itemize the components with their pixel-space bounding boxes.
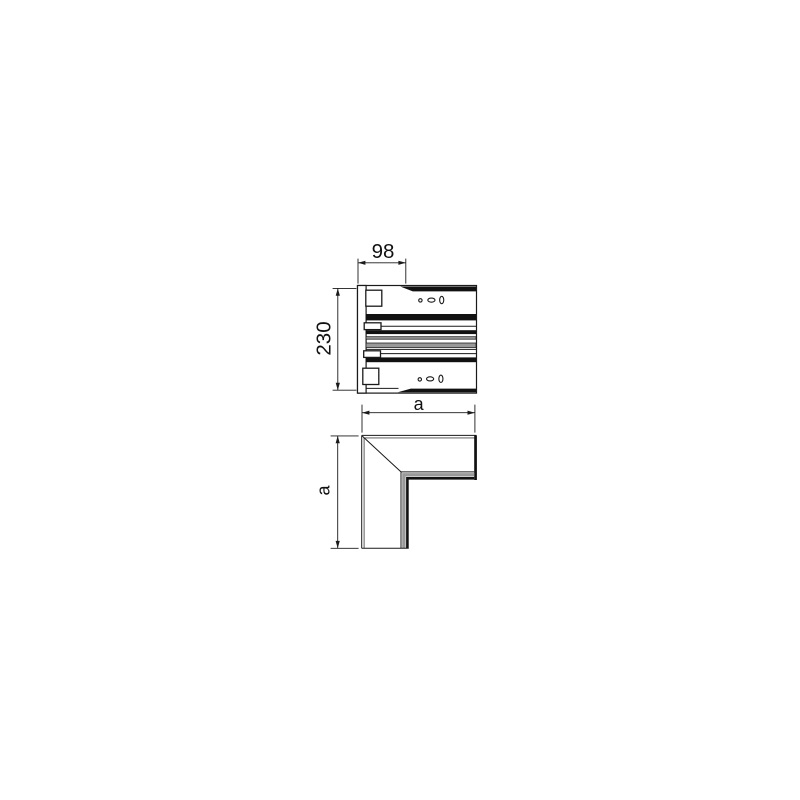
dimension-a-horizontal: a bbox=[362, 394, 475, 433]
arrowhead-right-icon bbox=[468, 411, 475, 415]
latch-rect bbox=[364, 323, 381, 330]
dim-a-vertical-label: a bbox=[314, 485, 334, 496]
right-end-edge bbox=[474, 435, 477, 480]
inner-edge-hairline bbox=[401, 472, 474, 548]
separator-band bbox=[366, 314, 476, 320]
center-rib bbox=[366, 337, 476, 340]
coupler-square bbox=[366, 290, 382, 306]
arrowhead-left-icon bbox=[362, 411, 369, 415]
miter-diagonal bbox=[362, 436, 401, 472]
inner-edge-gray-band bbox=[404, 475, 474, 549]
latch-rect bbox=[364, 351, 381, 358]
coupler-square bbox=[363, 368, 379, 384]
arrowhead-up-icon bbox=[336, 288, 340, 295]
dim-230-label: 230 bbox=[313, 321, 336, 355]
dimension-230: 230 bbox=[313, 288, 357, 390]
separator-band bbox=[366, 357, 476, 362]
separator-band bbox=[366, 330, 476, 334]
arrowhead-up-icon bbox=[336, 436, 340, 443]
bottom-lid-band bbox=[398, 389, 476, 393]
dimension-a-vertical: a bbox=[314, 436, 359, 548]
arrowhead-down-icon bbox=[336, 541, 340, 548]
dimension-98: 98 bbox=[358, 240, 406, 284]
center-rib bbox=[366, 343, 476, 348]
top-view: 98 230 bbox=[313, 240, 477, 393]
arrowhead-right-icon bbox=[398, 261, 405, 265]
dim-98-label: 98 bbox=[372, 240, 395, 263]
front-view: a a bbox=[314, 394, 477, 548]
top-lid-band bbox=[400, 287, 476, 292]
arrowhead-left-icon bbox=[358, 261, 365, 265]
dim-a-horizontal-label: a bbox=[414, 394, 425, 414]
inner-edge-black-band bbox=[407, 478, 474, 548]
arrowhead-down-icon bbox=[336, 383, 340, 390]
technical-drawing: 98 230 bbox=[0, 0, 800, 800]
drawing-page: 98 230 bbox=[0, 0, 800, 800]
